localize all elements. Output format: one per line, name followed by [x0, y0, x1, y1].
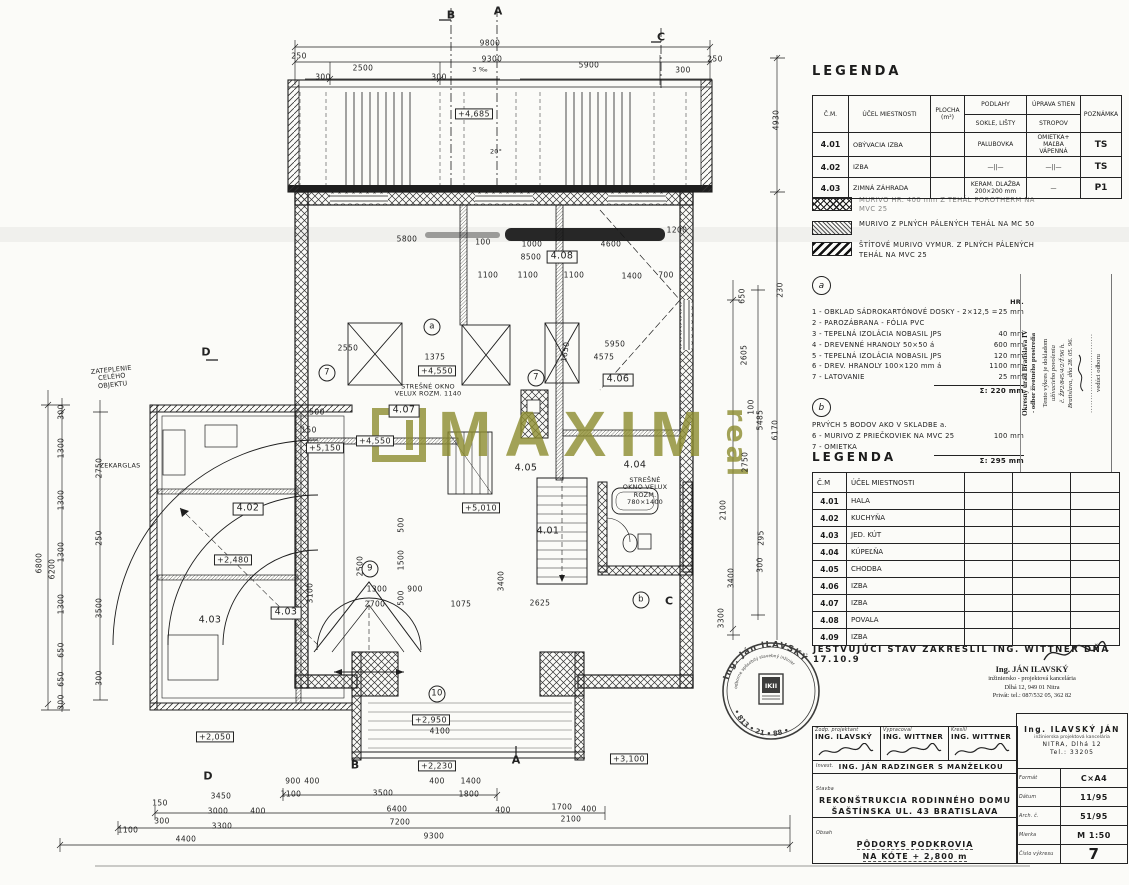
- col-header: Č.M: [813, 473, 847, 492]
- dimension-label: 1300: [58, 594, 67, 615]
- dimension-label: 2625: [530, 600, 551, 609]
- table-row: 4.07 IZBA: [813, 595, 1119, 612]
- dimension-label: 400: [581, 806, 597, 815]
- hatch-swatch-icon: [812, 197, 852, 211]
- wall-finish-cell: OMIETKA+ MAĽBA VÁPENNÁ: [1027, 133, 1081, 156]
- section-mark: B: [351, 760, 359, 773]
- area-cell: [931, 133, 965, 156]
- room-list-table: Č.M ÚČEL MIESTNOSTI 4.01 HALA 4.02 KUCHY…: [812, 472, 1120, 646]
- elevation-box: +2,050: [196, 731, 234, 742]
- dimension-label: 650: [58, 642, 67, 658]
- elevation-box: +2,230: [418, 760, 456, 771]
- table-row: 4.01 OBÝVACIA IZBA PALUBOVKA OMIETKA+ MA…: [813, 133, 1121, 157]
- dimension-label: 300: [675, 67, 691, 76]
- room-number-cell: 4.03: [813, 527, 847, 543]
- elevation-box: +2,480: [214, 554, 252, 565]
- legend1-title: LEGENDA: [812, 64, 901, 79]
- maxim-watermark: MAXIM real: [372, 408, 749, 479]
- titleblock-info-row: Číslo výkresu 7: [1017, 845, 1127, 863]
- drawing-title-row: Obsah PÔDORYS PODKROVIA NA KÓTE + 2,800 …: [813, 818, 1017, 863]
- titleblock-person-cell: Zodp. projektant ING. ILAVSKÝ: [813, 727, 881, 760]
- table-header: Č.M ÚČEL MIESTNOSTI: [813, 473, 1119, 493]
- dimension-label: 300: [154, 818, 170, 827]
- titleblock-info-row: Formát C×A4: [1017, 769, 1127, 788]
- note-cell: TS: [1081, 133, 1121, 156]
- wall-hatch-legend: MURIVO HR. 400 mm Z TEHÁL POROTHERM NA M…: [812, 196, 1052, 260]
- section-mark: A: [512, 755, 521, 768]
- dimension-label: 500: [309, 409, 325, 418]
- room-purpose-cell: HALA: [847, 493, 965, 509]
- investor-name: ING. JÁN RADZINGER S MANŽELKOU: [839, 763, 1004, 771]
- detail-reference-bubble: a: [812, 276, 831, 295]
- dimension-label: 2700: [365, 601, 386, 610]
- room-number: 4.01: [537, 527, 560, 538]
- dimension-label: 650: [58, 671, 67, 687]
- hatch-legend-item: MURIVO Z PLNÝCH PÁLENÝCH TEHÁL NA MC 50: [812, 220, 1052, 235]
- section-mark: C: [665, 596, 673, 609]
- table-row: 4.06 IZBA: [813, 578, 1119, 595]
- layer-note-line: 6 - MURIVO Z PRIEČKOVIEK NA MVC 25100 mm: [812, 431, 1024, 442]
- dimension-label: 2500: [357, 556, 366, 577]
- signature-scribble: [885, 743, 943, 759]
- dimension-label: 4600: [601, 241, 622, 250]
- info-value: 11/95: [1061, 788, 1127, 806]
- section-mark: D: [201, 347, 210, 360]
- person-name: ING. WITTNER: [951, 733, 1015, 741]
- col-header: ÚPRAVA STIENSTROPOV: [1027, 96, 1081, 132]
- layer-note-line: 3 - TEPELNÁ IZOLÁCIA NOBASIL JPS40 mm: [812, 329, 1024, 340]
- dimension-label: 2100: [561, 816, 582, 825]
- dimension-label: 1100: [478, 272, 499, 281]
- room-finish-table: Č.M. ÚČEL MIESTNOSTI PLOCHA (m²) PODLAHY…: [812, 95, 1122, 199]
- stamp-number: • 813 • 21 • 88 •: [732, 708, 790, 738]
- room-number-cell: 4.06: [813, 578, 847, 594]
- dimension-label: 4400: [176, 836, 197, 845]
- project-row: Stavba REKONŠTRUKCIA RODINNÉHO DOMU ŠAŠT…: [813, 774, 1017, 818]
- room-number-box: 4.07: [389, 405, 420, 418]
- section-mark: C: [657, 32, 665, 45]
- table-row: 4.03 ZIMNÁ ZÁHRADA KERAM. DLAŽBA 200×200…: [813, 178, 1121, 198]
- detail-reference-bubble: 10: [429, 686, 446, 703]
- col-header: [1071, 473, 1119, 492]
- room-number-cell: 4.02: [813, 157, 849, 177]
- layer-note-line: 7 - LATOVANIE25 mm: [812, 372, 1024, 383]
- titleblock-left: Zodp. projektant ING. ILAVSKÝ Vypracoval…: [812, 726, 1018, 864]
- dimension-label: 1400: [622, 273, 643, 282]
- titleblock-info-row: Dátum 11/95: [1017, 788, 1127, 807]
- area-cell: [931, 178, 965, 198]
- room-number: 4.05: [515, 464, 538, 475]
- dimension-label: 900: [407, 586, 423, 595]
- section-mark: B: [447, 10, 455, 23]
- svg-text:Ing. Ján ILAVSKÝ: Ing. Ján ILAVSKÝ: [722, 640, 811, 681]
- dimension-label: 150: [301, 427, 317, 436]
- dimension-label: 1375: [425, 354, 446, 363]
- room-purpose-cell: OBÝVACIA IZBA: [849, 133, 931, 156]
- titleblock-person-cell: Vypracoval ING. WITTNER: [881, 727, 949, 760]
- layer-note-line: PRVÝCH 5 BODOV AKO V SKLADBE a.: [812, 420, 1024, 431]
- dimension-label: 150: [152, 800, 168, 809]
- dimension-label: 2605: [741, 345, 750, 366]
- dimension-label: 300: [58, 404, 67, 420]
- approval-stamp-note: Okresný úrad Bratislava IV - odbor život…: [1020, 274, 1112, 472]
- dimension-label: 230: [777, 282, 786, 298]
- room-purpose-cell: IZBA: [847, 629, 965, 645]
- svg-text:• 813 • 21 • 88 •: • 813 • 21 • 88 •: [732, 708, 790, 738]
- room-number-box: 4.08: [547, 251, 578, 264]
- wall-finish-cell: —: [1027, 178, 1081, 198]
- legend2-title: LEGENDA: [812, 450, 896, 464]
- room-number-cell: 4.02: [813, 510, 847, 526]
- dimension-label: 1300: [58, 542, 67, 563]
- dimension-label: 400: [304, 778, 320, 787]
- dimension-label: 4575: [594, 354, 615, 363]
- dimension-label: 8500: [521, 254, 542, 263]
- info-label: Formát: [1019, 776, 1037, 781]
- col-header: PLOCHA (m²): [931, 96, 965, 132]
- signature-scribble: [1076, 353, 1086, 393]
- person-name: ING. ILAVSKÝ: [815, 733, 878, 741]
- layer-notes-a: a HR. 1 - OBKLAD SÁDROKARTÓNOVÉ DOSKY - …: [812, 276, 1024, 395]
- dimension-label: 300: [58, 694, 67, 710]
- info-value: 7: [1061, 845, 1127, 863]
- dimension-label: 400: [495, 807, 511, 816]
- dimension-label: 2500: [353, 65, 374, 74]
- table-row: 4.01 HALA: [813, 493, 1119, 510]
- dimension-label: 1300: [58, 438, 67, 459]
- dimension-label: 9800: [480, 40, 501, 49]
- stamp-shield-text: IKII: [765, 682, 777, 690]
- dimension-label: 650: [739, 288, 748, 304]
- col-header: [965, 473, 1013, 492]
- dimension-label: 100: [475, 239, 491, 248]
- col-header: PODLAHYSOKLE, LIŠTY: [965, 96, 1027, 132]
- dimension-label: 300: [757, 557, 766, 573]
- round-stamp: Ing. Ján ILAVSKÝ odborne spôsobilý stave…: [718, 638, 824, 744]
- col-header: [1013, 473, 1071, 492]
- dimension-label: 1075: [451, 601, 472, 610]
- dimension-label: 2750: [742, 452, 751, 473]
- detail-reference-bubble: b: [633, 592, 650, 609]
- project-title-line1: REKONŠTRUKCIA RODINNÉHO DOMU: [816, 796, 1014, 805]
- titleblock-info-row: Arch. č. 51/95: [1017, 807, 1127, 826]
- dimension-label: 6200: [49, 559, 58, 580]
- room-purpose-cell: KÚPEĽŇA: [847, 544, 965, 560]
- info-label: Arch. č.: [1019, 814, 1039, 819]
- signature-scribble: [817, 743, 875, 759]
- room-purpose-cell: IZBA: [849, 157, 931, 177]
- elevation-box: +4,550: [418, 365, 456, 376]
- dimension-label: 9300: [482, 56, 503, 65]
- room-purpose-cell: POVALA: [847, 612, 965, 628]
- titleblock-person-cell: Kreslil ING. WITTNER: [949, 727, 1017, 760]
- watermark-text: MAXIM: [438, 408, 716, 460]
- room-purpose-cell: ZIMNÁ ZÁHRADA: [849, 178, 931, 198]
- dimension-label: 3300: [718, 608, 727, 629]
- dimension-label: 9300: [424, 833, 445, 842]
- dimension-label: 7200: [390, 819, 411, 828]
- dimension-label: 300: [431, 74, 447, 83]
- plan-note: STREŠNÉ OKNO VELUX ROZM. 780×1400: [623, 477, 668, 507]
- dimension-label: 5800: [397, 236, 418, 245]
- investor-row: Invest. ING. JÁN RADZINGER S MANŽELKOU: [813, 761, 1017, 774]
- col-header: ÚČEL MIESTNOSTI: [849, 96, 931, 132]
- detail-reference-bubble: 7: [528, 370, 545, 387]
- room-purpose-cell: IZBA: [847, 595, 965, 611]
- dimension-label: 1650: [560, 341, 572, 363]
- room-purpose-cell: KUCHYŇA: [847, 510, 965, 526]
- hatch-legend-label: MURIVO Z PLNÝCH PÁLENÝCH TEHÁL NA MC 50: [859, 220, 1035, 229]
- approval-signatory-role: vedúci odboru: [1095, 354, 1103, 392]
- dimension-label: 300: [96, 670, 105, 686]
- table-header: Č.M. ÚČEL MIESTNOSTI PLOCHA (m²) PODLAHY…: [813, 96, 1121, 133]
- table-row: 4.05 CHODBA: [813, 561, 1119, 578]
- layer-note-line: 2 - PAROZÁBRANA - FÓLIA PVC: [812, 318, 1024, 329]
- dimension-label: 1300: [58, 490, 67, 511]
- hatch-legend-label: MURIVO HR. 400 mm Z TEHÁL POROTHERM NA M…: [859, 196, 1044, 214]
- approval-department: - odbor životného prostredia: [1030, 333, 1038, 413]
- dimension-label: 2550: [338, 345, 359, 354]
- dimension-label: 1100: [518, 272, 539, 281]
- room-number-cell: 4.07: [813, 595, 847, 611]
- layer-note-line: 5 - TEPELNÁ IZOLÁCIA NOBASIL JPS120 mm: [812, 351, 1024, 362]
- note-cell: TS: [1081, 157, 1121, 177]
- table-row: 4.03 JED. KÚT: [813, 527, 1119, 544]
- col-header: POZNÁMKA: [1081, 96, 1121, 132]
- info-value: 51/95: [1061, 807, 1127, 825]
- plan-note: STREŠNÉ OKNO VELUX ROZM. 1140: [395, 384, 462, 399]
- room-purpose-cell: JED. KÚT: [847, 527, 965, 543]
- dimension-label: 3400: [498, 571, 507, 592]
- titleblock-info-row: Mierka M 1:50: [1017, 826, 1127, 845]
- room-number-box: 4.03: [271, 607, 302, 620]
- layer-note-line: 1 - OBKLAD SÁDROKARTÓNOVÉ DOSKY - 2×12,5…: [812, 307, 1024, 318]
- room-number-cell: 4.03: [813, 178, 849, 198]
- elevation-box: +3,100: [610, 753, 648, 764]
- dimension-label: 6400: [387, 806, 408, 815]
- layer-note-line: 6 - DREV. HRANOLY 100×120 mm á1100 mm: [812, 361, 1024, 372]
- dimension-label: 6170: [772, 420, 781, 441]
- plan-note: ZEKARGLAS: [100, 462, 141, 469]
- drawing-title-line2: NA KÓTE + 2,800 m: [863, 852, 968, 862]
- room-number-cell: 4.08: [813, 612, 847, 628]
- dimension-label: 3000: [208, 808, 229, 817]
- dimension-label: 1700: [552, 804, 573, 813]
- dimension-label: 500: [398, 590, 407, 606]
- dimension-label: 5485: [757, 410, 766, 431]
- signature-scribble: [1040, 640, 1110, 666]
- person-name: ING. WITTNER: [883, 733, 946, 741]
- signature-scribble: [953, 743, 1011, 759]
- dimension-label: 2750: [96, 458, 105, 479]
- elevation-box: +2,950: [412, 714, 450, 725]
- room-number-cell: 4.04: [813, 544, 847, 560]
- dimension-label: 1000: [522, 241, 543, 250]
- area-cell: [931, 157, 965, 177]
- room-number-cell: 4.01: [813, 133, 849, 156]
- elevation-box: +4,685: [455, 108, 493, 119]
- elevation-box: +4,550: [356, 435, 394, 446]
- info-label: Mierka: [1019, 833, 1036, 838]
- plan-note: 3 ‰: [472, 66, 488, 73]
- room-purpose-cell: IZBA: [847, 578, 965, 594]
- detail-reference-bubble: a: [424, 319, 441, 336]
- detail-reference-bubble: b: [812, 398, 831, 417]
- table-row: 4.04 KÚPEĽŇA: [813, 544, 1119, 561]
- dimension-label: 250: [96, 530, 105, 546]
- hatch-legend-label: ŠTÍTOVÉ MURIVO VYMUR. Z PLNÝCH PÁLENÝCH …: [859, 241, 1044, 259]
- plan-note: ZATEPLENIE CELÉHO OBJEKTU: [90, 365, 133, 392]
- dimension-label: 1100: [564, 272, 585, 281]
- room-number-cell: 4.01: [813, 493, 847, 509]
- hatch-swatch-icon: [812, 221, 852, 235]
- section-mark: A: [494, 6, 503, 19]
- dimension-label: 700: [658, 272, 674, 281]
- table-row: 4.02 KUCHYŇA: [813, 510, 1119, 527]
- stamp-name: Ing. Ján ILAVSKÝ: [722, 640, 811, 681]
- floor-cell: KERAM. DLAŽBA 200×200 mm: [965, 178, 1027, 198]
- elevation-box: +5,010: [462, 502, 500, 513]
- engineer-contact-block: Ing. JÁN ILAVSKÝ inžiniersko - projektov…: [938, 664, 1126, 701]
- col-header: ÚČEL MIESTNOSTI: [847, 473, 965, 492]
- dimension-label: 3100: [307, 583, 316, 604]
- thickness-col-header: HR.: [812, 298, 1024, 306]
- dimension-label: 2100: [720, 500, 729, 521]
- dimension-label: 1200: [667, 227, 688, 236]
- info-label: Dátum: [1019, 795, 1036, 800]
- info-label: Číslo výkresu: [1019, 852, 1054, 857]
- plan-note: 20°: [490, 148, 502, 155]
- detail-reference-bubble: 7: [319, 365, 336, 382]
- dimension-label: 300: [315, 74, 331, 83]
- dimension-label: 5900: [579, 62, 600, 71]
- dimension-label: 1800: [459, 791, 480, 800]
- approval-authority: Okresný úrad Bratislava IV: [1021, 330, 1030, 416]
- col-header: Č.M.: [813, 96, 849, 132]
- dimension-label: 250: [291, 53, 307, 62]
- elevation-box: +5,150: [306, 442, 344, 453]
- titleblock-right: Ing. ILAVSKÝ JÁN inžinierska projektová …: [1016, 713, 1128, 864]
- room-purpose-cell: CHODBA: [847, 561, 965, 577]
- dimension-label: 500: [398, 517, 407, 533]
- hatch-swatch-icon: [812, 242, 852, 256]
- dimension-label: 250: [707, 56, 723, 65]
- table-row: 4.02 IZBA —||— —||— TS: [813, 157, 1121, 178]
- room-number-cell: 4.05: [813, 561, 847, 577]
- dimension-label: 400: [429, 778, 445, 787]
- room-number: 4.03: [199, 616, 222, 627]
- layer-note-line: 4 - DREVENNÉ HRANOLY 50×50 á600 mm: [812, 340, 1024, 351]
- note-cell: P1: [1081, 178, 1121, 198]
- room-number-box: 4.02: [233, 503, 264, 516]
- table-row: 4.08 POVALA: [813, 612, 1119, 629]
- info-value: C×A4: [1061, 769, 1127, 787]
- wall-finish-cell: —||—: [1027, 157, 1081, 177]
- dimension-label: 3400: [728, 568, 737, 589]
- dimension-label: 3500: [373, 790, 394, 799]
- firm-name: Ing. ILAVSKÝ JÁN: [1024, 725, 1120, 735]
- dimension-label: 295: [758, 530, 767, 546]
- dimension-label: 900: [285, 778, 301, 787]
- dimension-label: 3450: [211, 793, 232, 802]
- drawing-sheet: MAXIM real BACDDBACa77910b+4,685+4,550+4…: [0, 0, 1129, 885]
- thickness-sum: Σ: 295 mm: [934, 455, 1024, 465]
- dimension-label: 1500: [398, 550, 407, 571]
- dimension-label: 1400: [461, 778, 482, 787]
- floor-cell: —||—: [965, 157, 1027, 177]
- dimension-label: 1100: [281, 791, 302, 800]
- firm-header: Ing. ILAVSKÝ JÁN inžinierska projektová …: [1017, 714, 1127, 769]
- room-number-box: 4.06: [603, 374, 634, 387]
- dimension-label: 1100: [118, 827, 139, 836]
- info-value: M 1:50: [1061, 826, 1127, 844]
- floor-cell: PALUBOVKA: [965, 133, 1027, 156]
- dimension-label: 400: [250, 808, 266, 817]
- drawing-title-line1: PÔDORYS PODKROVIA: [857, 840, 974, 850]
- dimension-label: 3500: [96, 598, 105, 619]
- section-mark: D: [203, 771, 212, 784]
- project-title-line2: ŠAŠTÍNSKA UL. 43 BRATISLAVA: [816, 807, 1014, 816]
- dimension-label: 4100: [430, 728, 451, 737]
- dimension-label: 3300: [212, 823, 233, 832]
- hatch-legend-item: ŠTÍTOVÉ MURIVO VYMUR. Z PLNÝCH PÁLENÝCH …: [812, 241, 1052, 259]
- dimension-label: 1300: [367, 586, 388, 595]
- hatch-legend-item: MURIVO HR. 400 mm Z TEHÁL POROTHERM NA M…: [812, 196, 1052, 214]
- dimension-label: 5950: [605, 341, 626, 350]
- thickness-sum: Σ: 220 mm: [934, 385, 1024, 395]
- room-number: 4.04: [624, 461, 647, 472]
- dimension-label: 6800: [36, 553, 45, 574]
- dimension-label: 4930: [773, 110, 782, 131]
